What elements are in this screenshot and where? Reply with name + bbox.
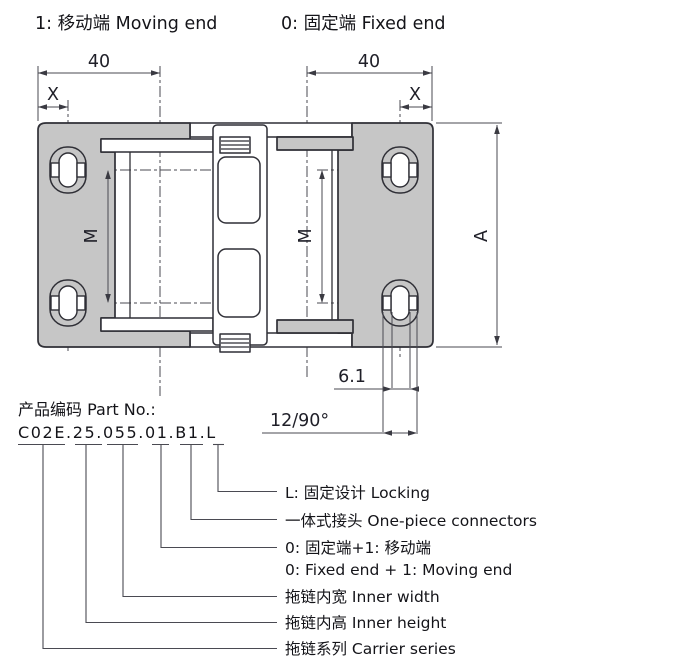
callout-end-type-zh: 0: 固定端+1: 移动端: [285, 537, 512, 559]
callout-carrier-series-text: 拖链系列 Carrier series: [285, 640, 456, 658]
dim-label-x-left: X: [47, 85, 59, 105]
dim-label-x-right: X: [409, 85, 421, 105]
callout-one-piece-connectors: 一体式接头 One-piece connectors: [285, 510, 537, 532]
dim-label-a: A: [472, 230, 492, 242]
dim-label-pitch-angle: 12/90°: [270, 411, 329, 431]
part-number-label: 产品编码 Part No.:: [18, 396, 156, 420]
dim-label-m-left: M: [82, 228, 102, 243]
dim-label-40-left: 40: [88, 52, 110, 72]
callout-locking-text: L: 固定设计 Locking: [285, 484, 430, 502]
callout-inner-height-text: 拖链内高 Inner height: [285, 614, 446, 632]
top-connector-tab: [220, 137, 250, 153]
bottom-connector-tab: [220, 334, 250, 352]
callout-locking: L: 固定设计 Locking: [285, 482, 430, 504]
callout-end-type: 0: 固定端+1: 移动端 0: Fixed end + 1: Moving e…: [285, 537, 512, 581]
callout-inner-width-text: 拖链内宽 Inner width: [285, 588, 440, 606]
callout-one-piece-connectors-text: 一体式接头 One-piece connectors: [285, 512, 537, 530]
dim-label-m-right: M: [296, 228, 316, 243]
dimension-x-right: X: [400, 85, 432, 110]
callout-carrier-series: 拖链系列 Carrier series: [285, 638, 456, 660]
mounting-slot-hole-bottom-left: [50, 280, 86, 326]
callout-inner-width: 拖链内宽 Inner width: [285, 586, 440, 608]
mounting-slot-hole-top-left: [50, 147, 86, 193]
part-number-code: C02E.25.055.01.B1.L: [18, 423, 217, 442]
dimension-a-overall: A: [436, 123, 502, 347]
dim-label-40-right: 40: [358, 52, 380, 72]
dimension-x-left: X: [38, 85, 68, 110]
callout-end-type-en: 0: Fixed end + 1: Moving end: [285, 559, 512, 581]
technical-drawing-page: 1: 移动端 Moving end 0: 固定端 Fixed end: [0, 0, 700, 663]
part-number-callout-lines: [18, 445, 277, 649]
callout-inner-height: 拖链内高 Inner height: [285, 612, 446, 634]
mounting-slot-hole-top-right: [382, 147, 418, 193]
center-link-piece: [213, 125, 267, 352]
dim-label-slot-width: 6.1: [338, 367, 366, 387]
dimension-m-right: M: [296, 170, 325, 303]
mounting-slot-hole-bottom-right: [382, 280, 418, 326]
